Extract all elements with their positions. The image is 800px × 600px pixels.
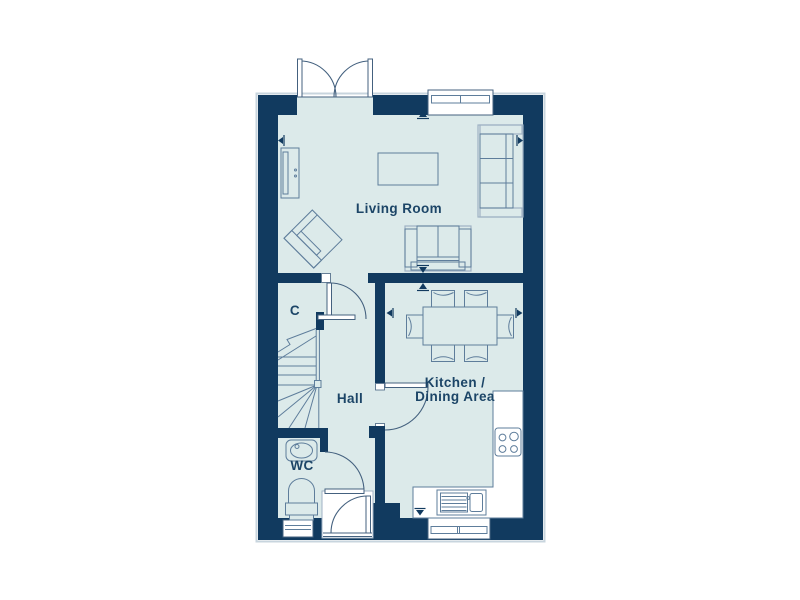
window-top (428, 90, 493, 115)
dining-table (423, 307, 497, 345)
wall-left (258, 95, 278, 540)
door-leaf (327, 283, 332, 319)
door-swing-arc (300, 61, 336, 97)
french-double-doors (298, 59, 373, 97)
door-leaf (385, 383, 428, 388)
door-swing-arc (334, 61, 370, 97)
door-jamb (376, 384, 385, 391)
toilet-bowl (289, 479, 315, 504)
label-cupboard: C (290, 303, 300, 318)
wall-stairs-wc (258, 428, 322, 438)
label-living-room: Living Room (356, 201, 442, 216)
hob-4-ring (495, 428, 521, 456)
sink-with-drainer (437, 490, 486, 515)
door-leaf (298, 59, 303, 97)
door-leaf (368, 59, 373, 97)
window-kitchen (428, 517, 490, 539)
entry-recess (322, 491, 373, 538)
sofa-3-seat (478, 125, 523, 217)
window-wc (283, 520, 313, 537)
hob-plate (495, 428, 521, 456)
loveseat-2-seat (405, 226, 471, 271)
wall-living-cupboard (258, 273, 321, 283)
toilet-base (290, 515, 314, 520)
wall-living-kitchen (368, 273, 523, 283)
floor-plan-page: Living Room Kitchen / Dining Area Hall C… (0, 0, 800, 600)
floor-plan-drawing: Living Room Kitchen / Dining Area Hall C… (0, 0, 800, 600)
wc-wall-stub (320, 428, 328, 452)
doorway-floor (297, 97, 373, 115)
front-door-recess (322, 491, 373, 538)
window-frame (283, 520, 313, 537)
label-kitchen-line2: Dining Area (415, 389, 495, 404)
label-hall: Hall (337, 391, 363, 406)
label-kitchen-line1: Kitchen / (425, 375, 486, 390)
wall-hall-kitchen-upper (375, 283, 385, 383)
cupboard-door (318, 315, 355, 320)
label-wc: WC (290, 458, 313, 473)
toilet-cistern (286, 503, 318, 515)
wall-entry-block (373, 503, 400, 518)
wall-right (523, 95, 543, 540)
sofa-outline (478, 125, 523, 217)
door-jamb (322, 274, 331, 283)
door-leaf (325, 489, 364, 494)
door-leaf (318, 315, 355, 320)
toilet (286, 479, 318, 521)
wall-stub (369, 426, 385, 438)
door-leaf (366, 496, 371, 533)
stair-newel (315, 381, 322, 388)
